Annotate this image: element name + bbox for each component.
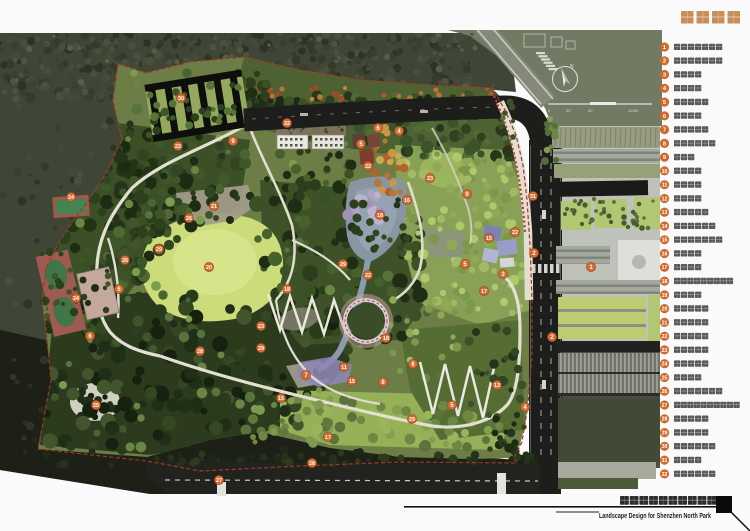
svg-text:15: 15 (486, 236, 492, 242)
svg-text:31: 31 (662, 458, 668, 464)
svg-text:29: 29 (409, 417, 415, 423)
svg-text:15: 15 (349, 379, 355, 385)
svg-text:22: 22 (365, 273, 371, 279)
svg-text:20: 20 (206, 265, 212, 271)
svg-text:17: 17 (481, 289, 487, 295)
svg-text:60: 60 (588, 108, 593, 113)
svg-text:18: 18 (284, 287, 290, 293)
svg-text:26: 26 (662, 389, 668, 395)
svg-text:24: 24 (73, 296, 79, 302)
svg-text:14: 14 (662, 224, 668, 230)
svg-text:26: 26 (122, 258, 128, 264)
svg-text:29: 29 (662, 431, 668, 437)
svg-text:22: 22 (662, 334, 668, 340)
svg-text:29: 29 (340, 262, 346, 268)
svg-text:30: 30 (662, 444, 668, 450)
svg-text:22: 22 (512, 230, 518, 236)
svg-text:18: 18 (377, 213, 383, 219)
svg-text:24: 24 (68, 195, 74, 201)
svg-text:16: 16 (404, 198, 410, 204)
svg-text:10: 10 (662, 169, 668, 175)
svg-text:22: 22 (175, 144, 181, 150)
svg-text:23: 23 (662, 348, 668, 354)
svg-text:20: 20 (662, 307, 668, 313)
svg-text:32: 32 (662, 472, 668, 478)
svg-text:31: 31 (530, 194, 536, 200)
svg-text:2: 2 (663, 59, 666, 65)
svg-text:15: 15 (278, 396, 284, 402)
svg-text:28: 28 (309, 461, 315, 467)
svg-text:17: 17 (325, 435, 331, 441)
svg-text:15: 15 (662, 238, 668, 244)
svg-text:11: 11 (662, 183, 668, 189)
svg-text:11: 11 (341, 365, 347, 371)
svg-text:18: 18 (662, 279, 668, 285)
svg-text:27: 27 (216, 478, 222, 484)
svg-text:28: 28 (197, 349, 203, 355)
svg-text:25: 25 (662, 375, 668, 381)
svg-text:29: 29 (258, 346, 264, 352)
svg-text:17: 17 (662, 265, 668, 271)
svg-text:N: N (570, 64, 574, 70)
svg-text:24: 24 (662, 362, 668, 368)
svg-text:16: 16 (662, 251, 668, 257)
svg-text:28: 28 (662, 417, 668, 423)
svg-text:29: 29 (156, 247, 162, 253)
svg-text:120M: 120M (628, 108, 638, 113)
svg-text:13: 13 (494, 383, 500, 389)
svg-text:27: 27 (662, 403, 668, 409)
svg-text:19: 19 (662, 293, 668, 299)
svg-text:13: 13 (662, 210, 668, 216)
svg-text:21: 21 (211, 204, 217, 210)
svg-text:26: 26 (186, 216, 192, 222)
svg-text:18: 18 (383, 336, 389, 342)
svg-text:22: 22 (365, 164, 371, 170)
svg-text:21: 21 (662, 320, 668, 326)
svg-text:23: 23 (258, 324, 264, 330)
svg-text:30: 30 (566, 108, 571, 113)
svg-text:12: 12 (662, 196, 668, 202)
svg-text:30: 30 (178, 96, 184, 102)
svg-text:25: 25 (93, 403, 99, 409)
svg-text:7: 7 (663, 128, 666, 134)
svg-text:Landscape Design for Shenzhen: Landscape Design for Shenzhen North Park (599, 513, 711, 520)
svg-text:32: 32 (284, 121, 290, 127)
svg-text:23: 23 (427, 176, 433, 182)
